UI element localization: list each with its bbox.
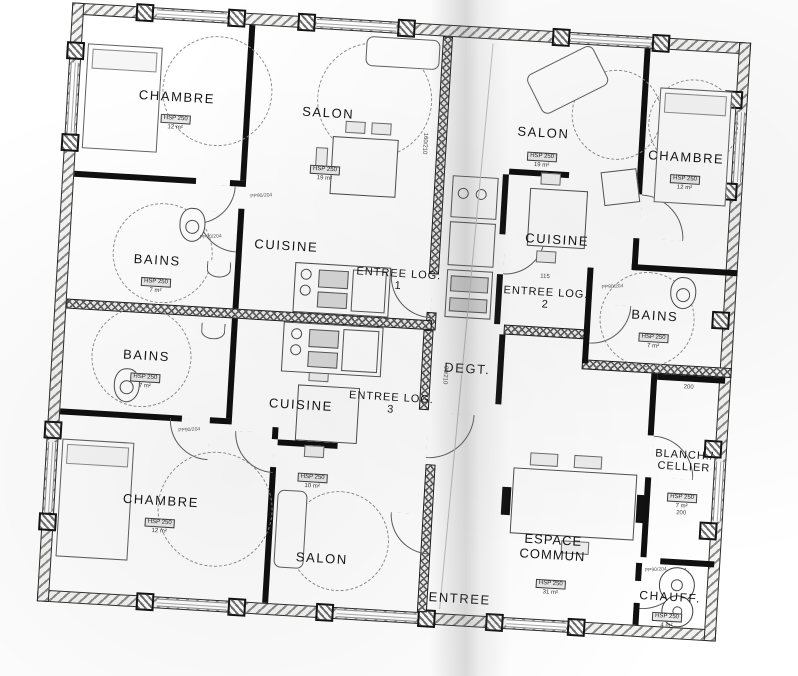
pillar <box>711 311 730 330</box>
room-label-entree2: ENTREE LOG. 2 <box>502 284 589 314</box>
room-tag-espace-commun: HSP 250 31 m² <box>535 571 566 597</box>
chair <box>540 172 561 185</box>
room-tag-salon2: HSP 250 19 m² <box>526 144 557 170</box>
dimension-label: 160/210 <box>421 132 428 154</box>
pillar <box>699 521 718 540</box>
room-tag-bains1: HSP 250 7 m² <box>140 269 171 295</box>
pillar <box>227 9 246 28</box>
chair <box>530 452 559 467</box>
party-wall <box>503 325 589 340</box>
room-label-salon1: SALON <box>302 104 355 122</box>
chair <box>536 250 557 263</box>
pillar <box>651 34 670 53</box>
pillar <box>227 598 246 617</box>
washbasin <box>201 323 226 340</box>
room-tag-bains3: HSP 250 7 m² <box>130 364 161 390</box>
pillar <box>567 618 586 637</box>
washbasin <box>206 261 231 278</box>
room-tag-chambre2: HSP 250 12 m² <box>669 166 700 192</box>
room-label-salon2: SALON <box>517 124 570 142</box>
floor-plan: CHAMBRE HSP 250 12 m² SALON HSP 250 19 m… <box>37 2 751 641</box>
room-label-cuisine3: CUISINE <box>269 395 334 414</box>
pillar <box>66 41 85 60</box>
sofa <box>365 36 441 70</box>
room-tag-cuisine3: HSP 250 10 m² <box>297 465 328 491</box>
pillow <box>91 49 157 73</box>
room-label-salon3: SALON <box>295 549 348 567</box>
pillar <box>135 3 154 22</box>
dimension-label: 200 <box>676 510 686 517</box>
chair <box>371 122 392 135</box>
pillow <box>66 444 129 468</box>
room-tag-chauff: HSP 250 4 m² <box>651 604 682 630</box>
room-tag-salon1: HSP 250 19 m² <box>309 157 340 183</box>
pillar <box>61 133 80 152</box>
door-arc <box>388 512 430 554</box>
wall <box>648 373 658 435</box>
wall <box>226 318 238 418</box>
wall <box>495 334 505 404</box>
chair <box>501 487 512 515</box>
room-label-degt: DEGT. <box>444 360 491 378</box>
stove <box>450 175 498 220</box>
pillar <box>315 603 334 622</box>
chair <box>345 121 366 134</box>
room-label-blanch-cellier: BLANCH./ CELLIER <box>641 447 728 477</box>
door-arc <box>426 412 475 461</box>
armchair <box>601 168 641 206</box>
room-tag-blanch-cellier: HSP 250 7 m² <box>666 485 697 511</box>
wall <box>60 408 182 421</box>
pillar <box>297 13 316 32</box>
kitchen-sink <box>317 291 348 309</box>
chair <box>304 445 325 458</box>
pillar <box>485 613 504 632</box>
kitchen-sink <box>308 329 339 349</box>
dimension-label: 90/210 <box>441 366 448 385</box>
pillar <box>38 512 57 531</box>
room-label-bains1: BAINS <box>133 251 181 269</box>
door-code-label: PP90/204 <box>250 192 272 199</box>
room-tag-bains2: HSP 250 7 m² <box>638 325 669 351</box>
wall <box>210 417 232 424</box>
kitchen-sink <box>318 269 349 289</box>
scanned-floor-plan-page: { "plan": { "rooms": { "chambre1": {"nam… <box>0 0 798 676</box>
room-label-bains3: BAINS <box>123 347 171 365</box>
wall <box>74 171 196 184</box>
pillar <box>397 19 416 38</box>
chair <box>636 495 647 523</box>
pillar <box>552 28 571 47</box>
room-label-entree3: ENTREE LOG. 3 <box>347 389 434 419</box>
wall <box>499 174 509 234</box>
dimension-label: 115 <box>540 274 550 281</box>
room-label-espace-commun: ESPACE COMMUN <box>509 531 597 565</box>
pillow <box>664 93 727 117</box>
room-label-bains2: BAINS <box>631 307 679 325</box>
room-label-entree1: ENTREE LOG. 1 <box>355 265 442 295</box>
room-tag-chambre1: HSP 250 12 m² <box>160 106 191 132</box>
common-table <box>510 467 638 540</box>
kitchen-sink <box>307 351 338 369</box>
pillar <box>135 592 154 611</box>
room-label-entree: ENTREE <box>428 589 491 608</box>
dimension-label: 200 <box>683 384 693 391</box>
chair <box>574 455 603 470</box>
room-label-cuisine1: CUISINE <box>254 236 319 255</box>
room-label-chambre3: CHAMBRE <box>123 491 200 510</box>
room-tag-chambre3: HSP 250 12 m² <box>144 510 175 536</box>
pillar <box>43 420 62 439</box>
appliance <box>341 329 379 373</box>
